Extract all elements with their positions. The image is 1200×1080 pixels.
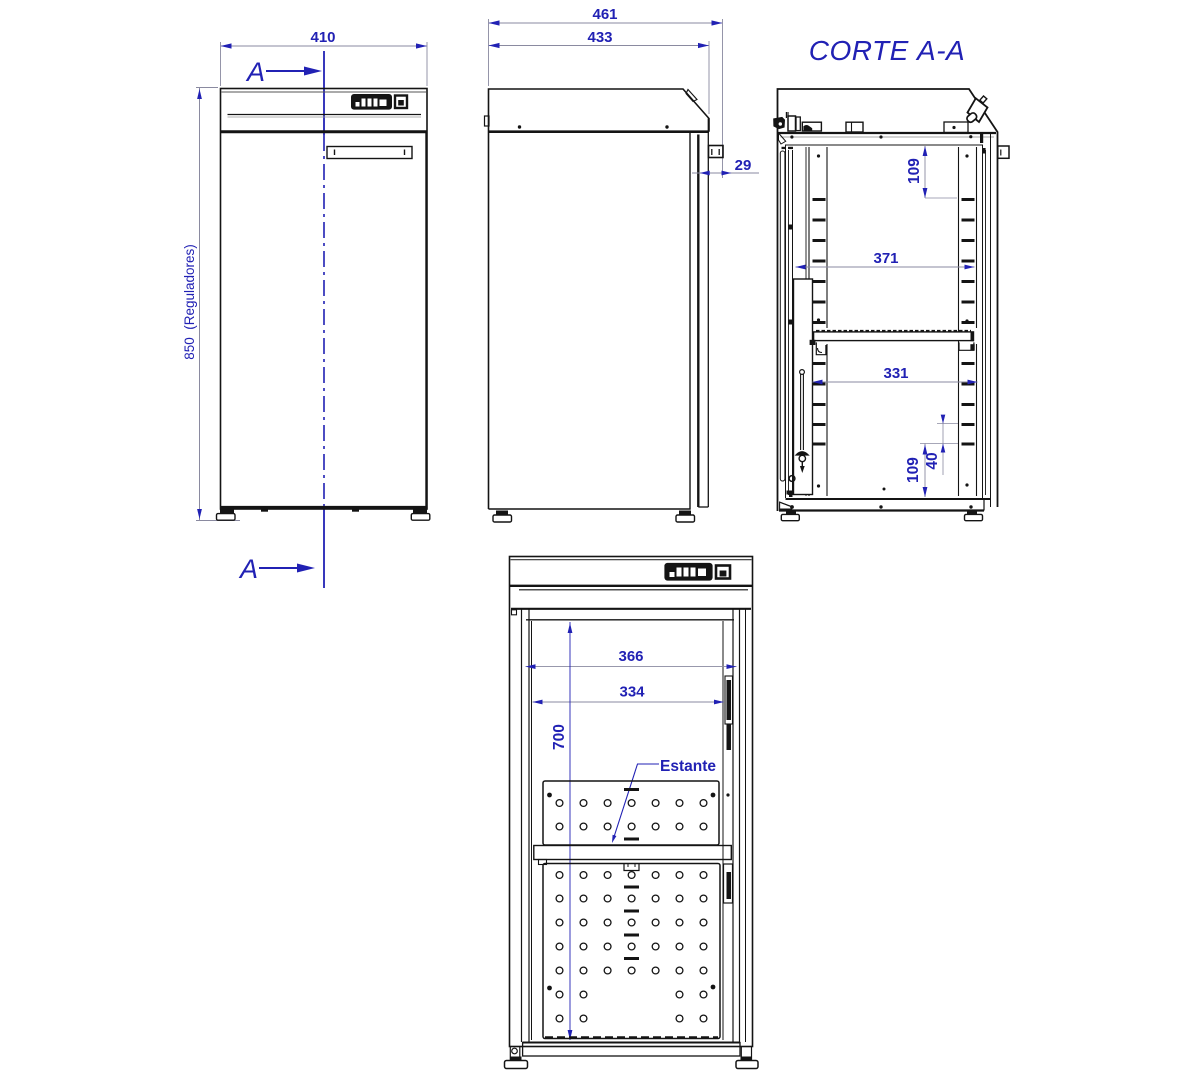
svg-text:109: 109 bbox=[905, 457, 922, 483]
svg-text:331: 331 bbox=[883, 365, 908, 382]
svg-text:Estante: Estante bbox=[660, 758, 716, 775]
svg-text:CORTE A-A: CORTE A-A bbox=[809, 35, 965, 66]
svg-text:371: 371 bbox=[873, 250, 898, 267]
svg-text:A: A bbox=[245, 57, 265, 87]
svg-text:850 (Reguladores): 850 (Reguladores) bbox=[182, 244, 197, 360]
svg-text:461: 461 bbox=[592, 6, 617, 23]
svg-text:700: 700 bbox=[551, 724, 568, 750]
svg-text:109: 109 bbox=[906, 158, 923, 184]
svg-text:334: 334 bbox=[619, 684, 645, 701]
svg-text:410: 410 bbox=[310, 29, 335, 46]
svg-text:40: 40 bbox=[924, 452, 941, 469]
svg-text:29: 29 bbox=[735, 157, 752, 174]
svg-text:366: 366 bbox=[618, 648, 643, 665]
svg-text:433: 433 bbox=[587, 29, 612, 46]
svg-text:A: A bbox=[238, 554, 258, 584]
